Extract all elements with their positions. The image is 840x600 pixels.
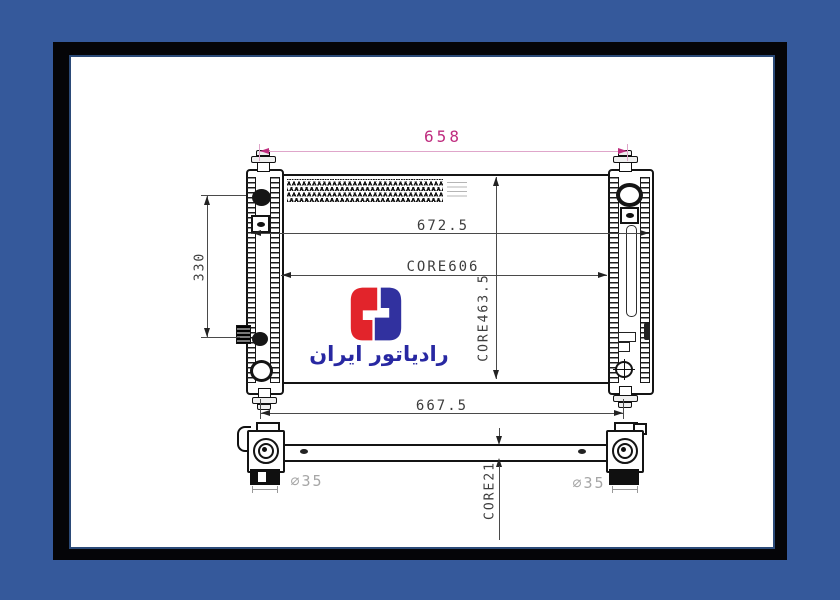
dim-330-arrow-bottom <box>204 328 210 337</box>
dim-672-arrow-right <box>640 230 649 236</box>
dim-core21-arrow-down <box>496 436 502 445</box>
dim-core463-label: CORE463.5 <box>477 262 492 374</box>
mounting-pin-bottom-right <box>612 388 638 408</box>
dim-port-right-line <box>613 489 637 490</box>
brand-logo-icon <box>346 284 406 344</box>
dim-667-ext-right <box>623 399 624 419</box>
pin-collar <box>251 156 276 163</box>
dim-port-right-ticks <box>612 486 638 493</box>
left-tank-upper-port <box>252 189 271 206</box>
dim-658-arrow-left <box>260 148 269 154</box>
top-view-right-block <box>606 430 644 473</box>
pin-collar <box>613 395 638 402</box>
right-tank-step-fitting <box>618 332 636 342</box>
dim-330-tick-top <box>201 195 246 196</box>
dim-672-label: 672.5 <box>398 218 488 234</box>
logo-blue-shape <box>375 288 401 341</box>
bracket-slot <box>258 472 266 482</box>
pin-stem <box>258 388 271 397</box>
left-tank-side-fitting <box>236 325 251 344</box>
dim-667-ext-left <box>260 399 261 419</box>
dim-port-right-label: ⌀35 <box>564 474 614 492</box>
right-tank-sensor-boss <box>620 207 639 224</box>
left-tank-crimp-left <box>246 177 256 383</box>
logo-red-shape <box>351 288 377 341</box>
radiator-drawing: 658 672.5 CORE606 330 CORE463.5 667.5 <box>0 0 840 600</box>
top-view-left-bracket <box>250 469 280 485</box>
dim-port-left-ticks <box>252 486 278 493</box>
dim-core606-arrow-right <box>598 272 607 278</box>
right-tank-side-tab <box>644 323 650 340</box>
dim-core606-line <box>281 275 607 276</box>
pin-collar <box>613 156 638 163</box>
port-center <box>262 447 267 452</box>
bar-hole-right <box>578 449 586 454</box>
dim-port-left-line <box>253 489 277 490</box>
dim-667-arrow-right <box>614 410 623 416</box>
core-fin-hatching <box>287 179 443 202</box>
dim-330-arrow-top <box>204 196 210 205</box>
dim-core21-line-bottom <box>499 466 500 540</box>
left-tank-crimp-right <box>270 177 280 383</box>
pin-collar <box>252 397 277 404</box>
dim-core463-arrow-top <box>493 177 499 186</box>
dim-330-tick-bottom <box>201 337 240 338</box>
top-view-left-block <box>247 430 285 473</box>
right-tank-filler-neck <box>616 183 643 207</box>
right-tank-step-fitting-2 <box>618 342 630 352</box>
technical-drawing-poster: 658 672.5 CORE606 330 CORE463.5 667.5 <box>0 0 840 600</box>
core-fin-fade-lines <box>447 182 467 198</box>
dim-658-line <box>259 151 627 152</box>
dim-core606-arrow-left <box>282 272 291 278</box>
pin-cap <box>618 402 632 408</box>
pin-stem <box>619 386 632 395</box>
dim-667-arrow-left <box>261 410 270 416</box>
mounting-pin-bottom-left <box>251 390 277 410</box>
right-tank-drain-plug <box>615 361 633 378</box>
dim-658-label: 658 <box>398 127 488 146</box>
dim-330-label: 330 <box>193 245 208 289</box>
dim-667-label: 667.5 <box>397 398 487 414</box>
brand-logo-text: رادیاتور ایران <box>295 342 463 366</box>
dim-core21-label: CORE21 <box>483 449 498 533</box>
port-center <box>621 447 626 452</box>
dim-658-ext-right <box>627 144 628 161</box>
boss-hole <box>626 213 634 218</box>
top-view-bar <box>280 444 610 462</box>
dim-672-arrow-left <box>252 230 261 236</box>
drain-cross-v <box>624 359 625 380</box>
dim-core463-arrow-bottom <box>493 370 499 379</box>
bar-hole-left <box>300 449 308 454</box>
left-tank-lower-port <box>252 332 268 346</box>
dim-port-left-label: ⌀35 <box>282 472 332 490</box>
right-tank-crimp-left <box>609 177 619 383</box>
left-tank-outlet-ring <box>250 360 273 382</box>
right-tank-crimp-right <box>640 177 650 383</box>
dim-core463-line <box>496 177 497 379</box>
dim-658-arrow-right <box>618 148 627 154</box>
pin-stem <box>619 163 632 172</box>
boss-hole <box>257 222 265 227</box>
right-tank-slot <box>626 225 637 317</box>
pin-stem <box>257 163 270 172</box>
